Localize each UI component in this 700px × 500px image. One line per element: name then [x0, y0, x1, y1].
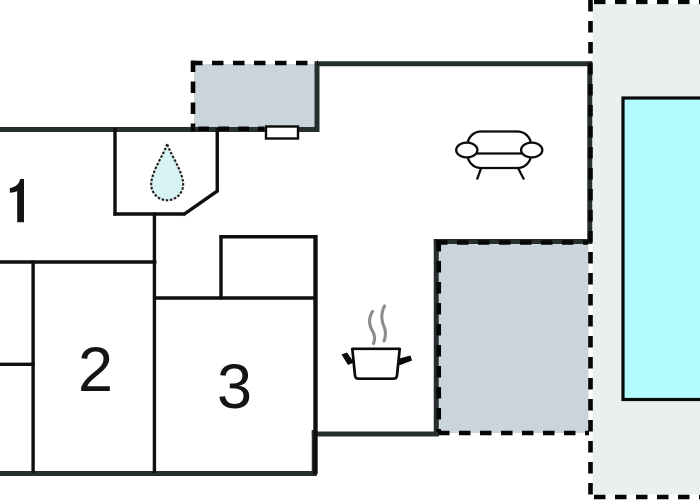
- svg-text:2: 2: [78, 335, 113, 405]
- svg-text:3: 3: [217, 352, 252, 422]
